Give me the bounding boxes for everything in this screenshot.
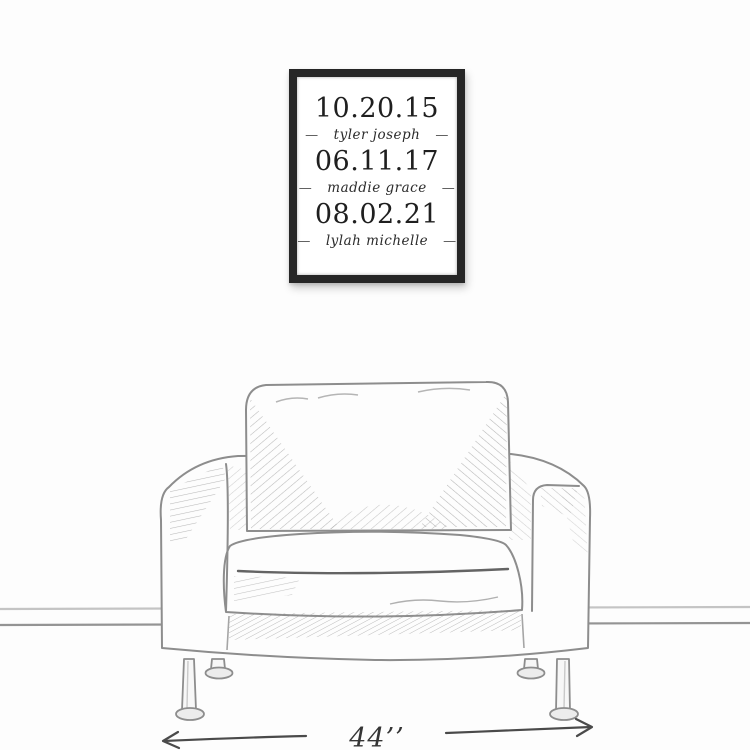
chair-sketch: 44’’ (0, 0, 750, 750)
chair-legs (176, 659, 578, 720)
dimension-line-left (164, 736, 306, 741)
dimension-line-right (446, 727, 591, 733)
dimension-label: 44’’ (348, 723, 405, 750)
product-mockup: 10.20.15 — tyler joseph — 06.11.17 — mad… (0, 0, 750, 750)
